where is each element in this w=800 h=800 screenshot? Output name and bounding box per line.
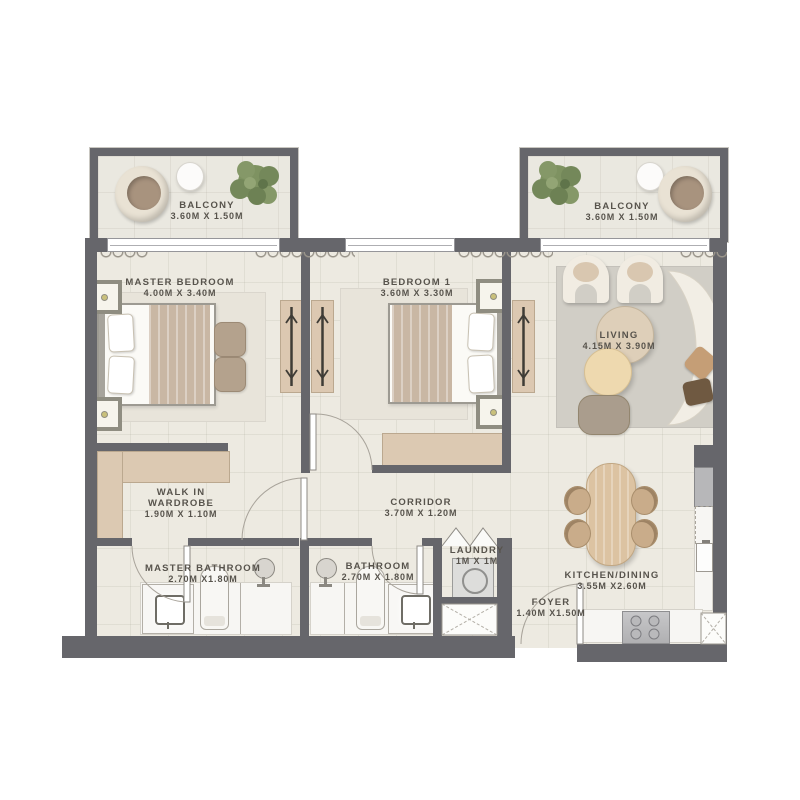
room-label-laundry: LAUNDRY 1M X 1M bbox=[450, 545, 505, 567]
wall-corridor-south bbox=[188, 538, 299, 546]
wall bbox=[280, 238, 345, 252]
sink-icon bbox=[155, 595, 185, 625]
shower-head-icon bbox=[316, 558, 337, 579]
curtain-icon bbox=[100, 252, 148, 262]
wall-bathrooms-divider bbox=[300, 538, 309, 636]
curtain-icon bbox=[680, 252, 727, 262]
wall-laundry-left bbox=[433, 538, 442, 636]
living-closet-icon bbox=[512, 300, 535, 393]
hanger-rail-icon bbox=[513, 301, 534, 392]
wall-laundry-bottom bbox=[433, 597, 512, 605]
hanging-chair-icon bbox=[658, 166, 712, 222]
window bbox=[345, 238, 455, 252]
tree-icon bbox=[528, 156, 586, 214]
wall bbox=[455, 238, 540, 252]
side-table-icon bbox=[176, 162, 204, 191]
dining-chair-icon bbox=[631, 486, 658, 515]
room-label-master-bedroom: MASTER BEDROOM 4.00M X 3.40M bbox=[125, 277, 234, 299]
coffee-table-small-icon bbox=[584, 348, 632, 396]
wall-right bbox=[713, 238, 727, 662]
dining-chair-icon bbox=[564, 486, 591, 515]
shower-partition bbox=[240, 583, 241, 634]
wall-bedroom1-south bbox=[372, 465, 511, 473]
wall-corridor-south bbox=[97, 538, 132, 546]
bedroom1-bed-icon bbox=[388, 303, 505, 404]
room-label-balcony-left: BALCONY 3.60M X 1.50M bbox=[171, 200, 244, 222]
pillow bbox=[467, 312, 495, 351]
bedroom1-dresser bbox=[382, 433, 504, 468]
room-label-bathroom: BATHROOM 2.70M X 1.80M bbox=[342, 561, 415, 583]
pillow bbox=[467, 354, 495, 393]
shower-partition bbox=[344, 583, 345, 634]
sink-icon bbox=[401, 595, 431, 625]
shower-bar bbox=[319, 584, 332, 587]
kitchen-sink-icon bbox=[696, 543, 713, 572]
burners bbox=[623, 612, 669, 643]
dining-chair-icon bbox=[564, 519, 591, 548]
floor-plan: BALCONY 3.60M X 1.50M BALCONY 3.60M X 1.… bbox=[0, 0, 800, 800]
headboard bbox=[99, 305, 105, 404]
stove-icon bbox=[622, 611, 670, 644]
hanger-rail-icon bbox=[281, 301, 302, 392]
ottoman-icon bbox=[214, 322, 246, 357]
walkin-closet-left bbox=[97, 451, 123, 540]
window bbox=[540, 238, 710, 252]
pillow bbox=[107, 313, 135, 352]
wall-master-south bbox=[85, 443, 228, 451]
wall-corridor-south bbox=[308, 538, 372, 546]
ottoman-icon bbox=[214, 357, 246, 392]
fridge-icon bbox=[694, 467, 715, 507]
dining-chair-icon bbox=[631, 519, 658, 548]
blanket bbox=[392, 305, 452, 402]
armchair-icon bbox=[563, 255, 609, 303]
hanging-chair-icon bbox=[115, 166, 169, 222]
living-ottoman-icon bbox=[578, 395, 630, 435]
master-wardrobe-icon bbox=[280, 300, 303, 393]
blanket bbox=[149, 305, 210, 404]
curtain-icon bbox=[458, 252, 553, 262]
pillow bbox=[107, 355, 135, 394]
wall-fridge-nub bbox=[694, 445, 713, 467]
counter-appliance-zone bbox=[695, 506, 714, 544]
curtain-icon bbox=[255, 252, 355, 262]
wall-bedrooms-divider bbox=[301, 250, 310, 473]
wall-bottom-right bbox=[577, 644, 727, 662]
dining-table-icon bbox=[586, 463, 636, 566]
room-label-balcony-right: BALCONY 3.60M X 1.50M bbox=[586, 201, 659, 223]
room-label-living: LIVING 4.15M X 3.90M bbox=[583, 330, 656, 352]
room-label-walk-in-wardrobe: WALK IN WARDROBE 1.90M X 1.10M bbox=[145, 487, 218, 520]
room-label-corridor: CORRIDOR 3.70M X 1.20M bbox=[385, 497, 458, 519]
room-label-foyer: FOYER 1.40M X1.50M bbox=[516, 597, 585, 619]
master-bed-icon bbox=[97, 303, 216, 406]
wall-bottom-left bbox=[62, 636, 515, 658]
bedroom1-wardrobe-icon bbox=[311, 300, 334, 393]
hanger-rail-icon bbox=[312, 301, 333, 392]
wall-bedroom1-living bbox=[502, 250, 511, 473]
room-label-master-bathroom: MASTER BATHROOM 2.70M X1.80M bbox=[145, 563, 261, 585]
room-label-kitchen-dining: KITCHEN/DINING 3.55M X2.60M bbox=[565, 570, 660, 592]
room-label-bedroom1: BEDROOM 1 3.60M X 3.30M bbox=[381, 277, 454, 299]
master-vanity-icon bbox=[142, 584, 194, 634]
window bbox=[107, 238, 280, 252]
